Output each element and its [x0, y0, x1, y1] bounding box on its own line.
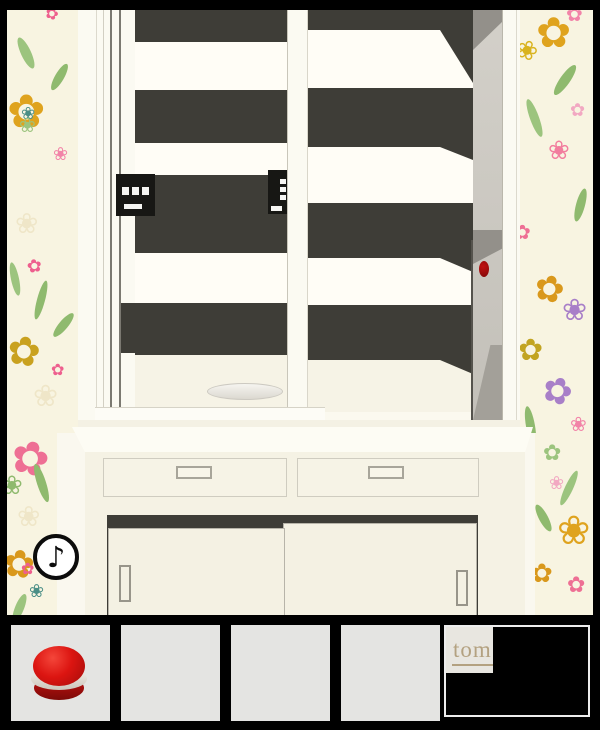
inventory-slot-4[interactable]: [341, 625, 440, 721]
plate[interactable]: [207, 383, 283, 400]
box-mark: [122, 187, 129, 195]
black-box-front[interactable]: [116, 174, 155, 216]
drawer-right-handle[interactable]: [368, 466, 404, 479]
shelf-band: [135, 253, 287, 303]
inventory-bar: tom: [0, 615, 600, 730]
box-mark: [124, 204, 142, 209]
frame-line: [502, 10, 503, 427]
frame-line: [516, 10, 517, 427]
door-edge-line: [110, 10, 112, 410]
cabinet-shelves-left[interactable]: [135, 10, 287, 410]
flower-icon: ✿: [567, 575, 585, 597]
flower-icon: ✿: [520, 336, 543, 366]
music-toggle-button[interactable]: ♪: [33, 534, 79, 580]
shelf-floor: [135, 355, 287, 410]
tomatea-logo-text: tom: [452, 637, 493, 666]
flower-icon: ❀: [7, 473, 23, 499]
panel-shadow: [473, 10, 502, 50]
flower-icon: ❀: [562, 296, 587, 326]
shelf-band: [308, 147, 473, 203]
sliding-door-left[interactable]: [108, 528, 285, 620]
panel-edge-line: [471, 240, 473, 420]
floor-front-edge: [308, 412, 473, 420]
box-mark: [280, 195, 286, 200]
leaf-shape: [572, 187, 589, 222]
flower-icon: ❀: [549, 475, 564, 493]
shelf-band: [135, 42, 287, 90]
flower-icon: ❀: [548, 138, 570, 164]
leaf-shape: [32, 280, 50, 321]
tomatea-logo[interactable]: tom: [446, 627, 493, 673]
flower-icon: ✿: [51, 362, 64, 378]
cabinet-shelves-right[interactable]: [308, 10, 473, 420]
center-stile: [287, 10, 308, 427]
panel-shadow: [473, 345, 502, 420]
flower-icon: ✿: [21, 561, 34, 577]
sliding-door-left-handle[interactable]: [119, 565, 131, 602]
inventory-slot-2[interactable]: [121, 625, 220, 721]
leaf-shape: [50, 311, 76, 340]
flower-icon: ❀: [520, 35, 542, 67]
flower-icon: ✿: [43, 10, 61, 24]
box-mark: [142, 187, 149, 195]
shelf-band: [308, 258, 473, 305]
flower-icon: ❀: [29, 583, 44, 601]
shelf-band: [135, 143, 287, 175]
wallpaper-left: ✿✿❀❀❀✿✿❀✿❀: [7, 10, 78, 433]
sliding-door-right-handle[interactable]: [456, 570, 468, 606]
flower-icon: ❀: [19, 115, 36, 135]
flower-icon: ✿: [26, 257, 44, 277]
sliding-door-right[interactable]: [283, 523, 477, 620]
leaf-shape: [14, 35, 37, 70]
red-button[interactable]: [479, 261, 489, 277]
wallpaper-left-lower: ✿❀❀✿❀✿: [7, 433, 57, 620]
flower-icon: ✿: [537, 370, 578, 414]
box-mark: [132, 187, 139, 195]
flower-icon: ❀: [15, 210, 38, 238]
leaf-shape: [48, 62, 71, 92]
leaf-shape: [8, 262, 23, 297]
panel-shadow: [473, 230, 502, 264]
flower-icon: ❀: [53, 146, 68, 164]
flower-icon: ✿: [7, 329, 44, 374]
cabinet-side-panel: [473, 10, 502, 420]
leaf-shape: [535, 503, 555, 534]
wallpaper-right-lower: ✿❀✿✿❀: [535, 433, 593, 620]
flower-icon: ✿: [535, 561, 553, 587]
game-screen: ✿✿❀❀❀✿✿❀✿❀ ✿❀❀✿❀✿ ✿❀✿❀✿✿✿❀✿✿❀ ✿❀✿✿❀: [0, 0, 600, 730]
music-note-icon: ♪: [47, 540, 66, 574]
box-mark: [280, 187, 286, 192]
flower-icon: ❀: [570, 414, 587, 433]
flower-icon: ❀: [33, 382, 58, 412]
flower-icon: ✿: [570, 102, 585, 120]
leaf-shape: [523, 98, 545, 139]
leaf-shape: [551, 62, 580, 97]
frame-line: [103, 10, 104, 410]
inventory-slot-3[interactable]: [231, 625, 330, 721]
flower-icon: ❀: [17, 503, 40, 531]
red-macaron-item[interactable]: [31, 646, 87, 700]
inventory-slot-1[interactable]: [11, 625, 110, 721]
shelf-floor: [308, 360, 473, 412]
flower-icon: ❀: [557, 511, 591, 551]
counter-top: [72, 427, 533, 452]
flower-icon: ✿: [543, 443, 561, 465]
flower-icon: ✿: [520, 222, 531, 242]
flower-icon: ✿: [566, 10, 583, 24]
tomatea-logo-slot[interactable]: tom: [444, 625, 590, 717]
macaron-top: [33, 646, 85, 686]
wallpaper-right: ✿❀✿❀✿✿✿❀✿✿❀: [520, 10, 593, 433]
shelf-shadow: [121, 303, 135, 353]
drawer-left-handle[interactable]: [176, 466, 212, 479]
box-mark: [271, 206, 282, 211]
black-box-side[interactable]: [268, 170, 289, 214]
frame-line: [96, 10, 97, 410]
box-mark: [280, 179, 286, 184]
